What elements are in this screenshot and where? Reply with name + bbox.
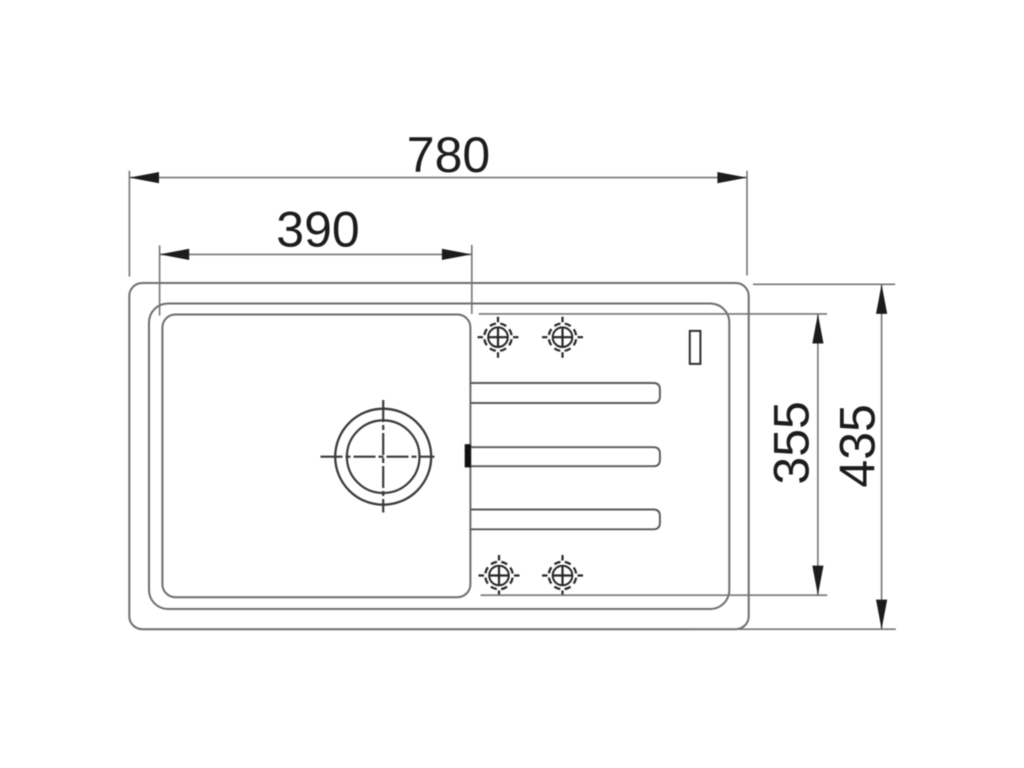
- svg-text:390: 390: [276, 202, 359, 258]
- svg-text:355: 355: [764, 401, 820, 484]
- svg-text:780: 780: [407, 127, 490, 183]
- svg-text:435: 435: [830, 404, 886, 487]
